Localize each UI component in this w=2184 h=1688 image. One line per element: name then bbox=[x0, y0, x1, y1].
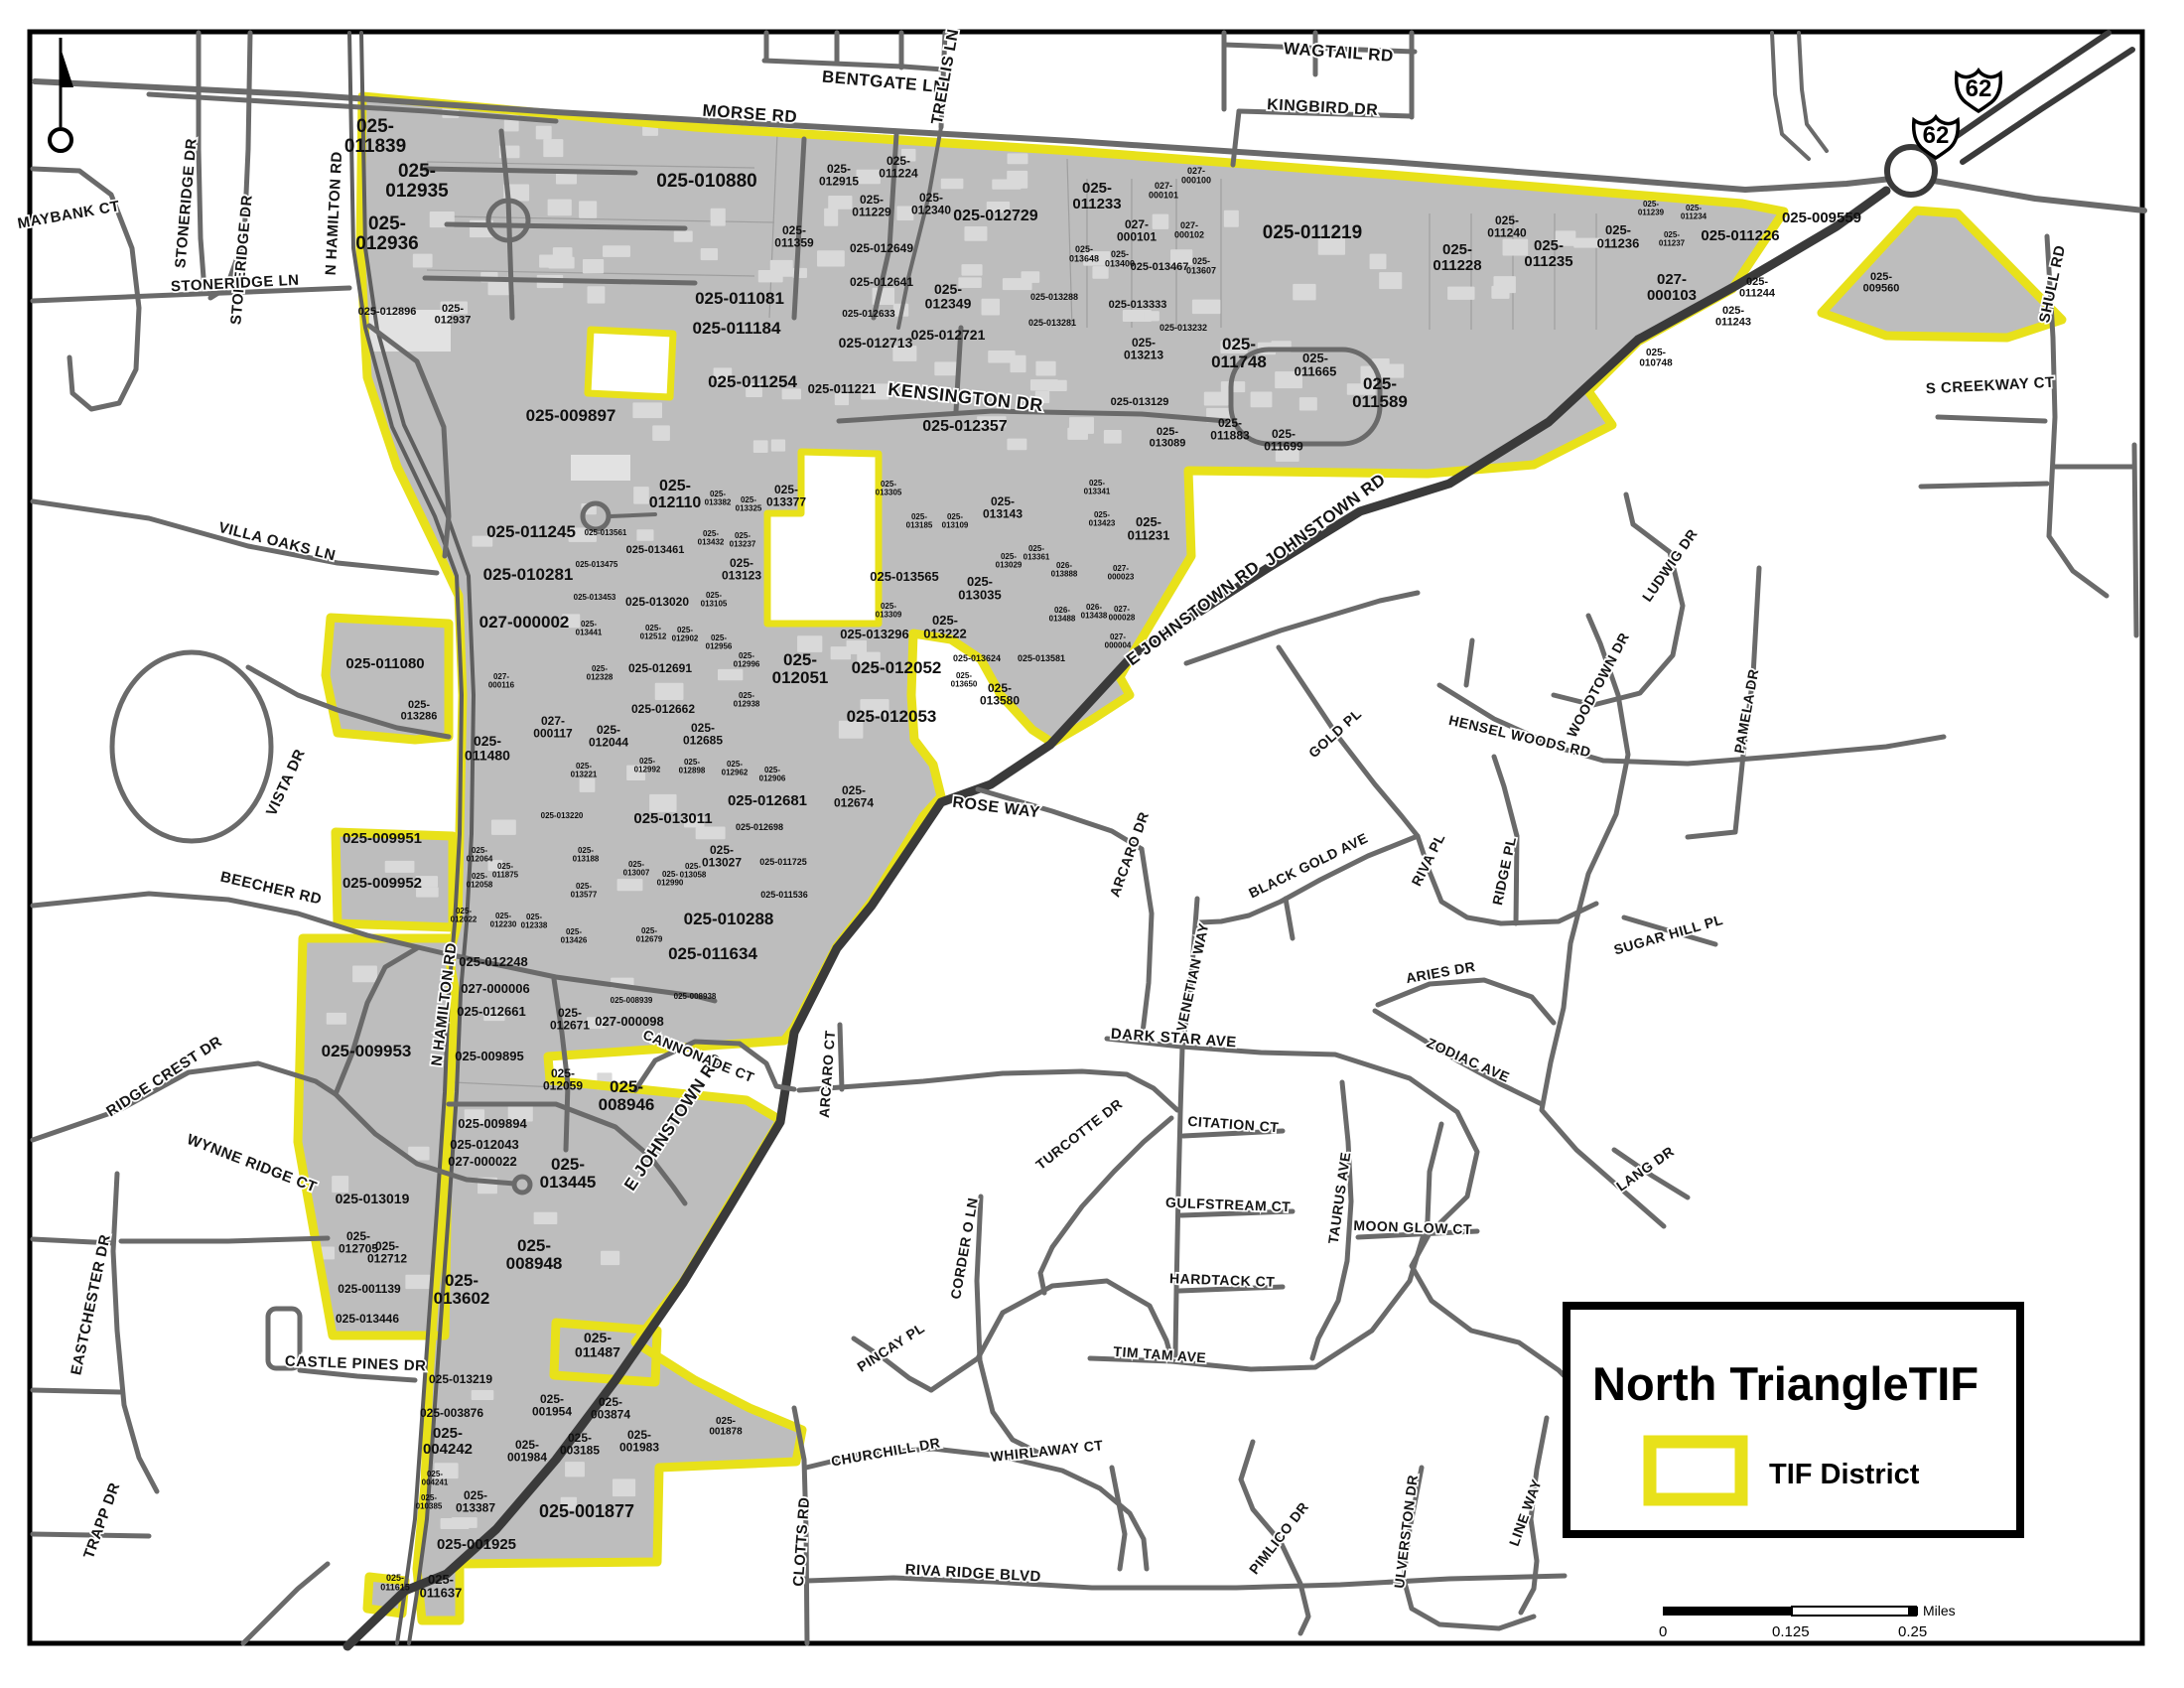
road bbox=[1921, 484, 2047, 487]
parcel-label: 025-009953 bbox=[322, 1042, 412, 1060]
road bbox=[611, 514, 655, 516]
parcel-label: 025-011536 bbox=[760, 890, 808, 900]
svg-text:62: 62 bbox=[1923, 122, 1950, 149]
parcel-label: 025-013232 bbox=[1160, 323, 1207, 333]
parcel-label: 025-013446 bbox=[336, 1312, 399, 1326]
parcel-label: 025-013561 bbox=[585, 528, 627, 537]
parcel-label: 025-013129 bbox=[1111, 396, 1169, 408]
parcel-label: 025-011080 bbox=[345, 655, 424, 672]
parcel-label: 025-012248 bbox=[459, 954, 527, 969]
parcel-label: 025-009895 bbox=[455, 1049, 523, 1063]
road bbox=[2134, 445, 2136, 635]
legend-label: TIF District bbox=[1769, 1459, 1920, 1490]
parcel-label: 025-013219 bbox=[429, 1372, 492, 1386]
parcel-label: 025-013475 bbox=[576, 560, 618, 569]
parcel-label: 025-010281 bbox=[483, 565, 574, 584]
parcel-label: 025-011725 bbox=[759, 857, 807, 867]
parcel-label: 025-008939 bbox=[611, 996, 653, 1005]
parcel-label: 025-012043 bbox=[450, 1137, 518, 1152]
parcel-label: 025-012641 bbox=[850, 275, 913, 289]
scale-unit: Miles bbox=[1923, 1603, 1956, 1618]
parcel-label: 025-012691 bbox=[628, 661, 692, 675]
parcel-label: 025-012681 bbox=[728, 792, 807, 809]
parcel-label: 025-013453 bbox=[574, 593, 616, 602]
parcel-label: 025-011634 bbox=[668, 944, 757, 963]
parcel-label: 025-009897 bbox=[526, 406, 616, 425]
parcel-label: 025-008938 bbox=[674, 992, 717, 1001]
parcel-label: 025-012729 bbox=[953, 208, 1038, 224]
parcel-label: 027-000006 bbox=[461, 981, 529, 996]
parcel-label: 025-013296 bbox=[840, 627, 908, 641]
parcel-label: 025-013581 bbox=[1018, 653, 1065, 663]
scale-end: 0.25 bbox=[1898, 1623, 1927, 1640]
scale-start: 0 bbox=[1659, 1623, 1667, 1640]
parcel-label: 025-013020 bbox=[625, 595, 689, 609]
parcel-label: 025-001877 bbox=[539, 1501, 634, 1521]
parcel-label: 025-012661 bbox=[457, 1004, 525, 1019]
parcel-label: 025-013220 bbox=[541, 811, 584, 820]
parcel-label: 025-013333 bbox=[1109, 299, 1167, 311]
parcel-label: 025-012721 bbox=[911, 327, 986, 343]
parcel-label: 027-000022 bbox=[448, 1154, 516, 1169]
parcel-label: 025-013624 bbox=[953, 653, 1001, 663]
parcel-label: 027-000098 bbox=[595, 1014, 663, 1029]
parcel-label: 025-009952 bbox=[342, 875, 422, 892]
parcel-label: 025-012896 bbox=[358, 306, 417, 318]
title-box-frame bbox=[1567, 1306, 2020, 1534]
parcel-label: 025-012052 bbox=[852, 658, 942, 677]
parcel-label: 025-013288 bbox=[1030, 292, 1078, 302]
parcel-label: 025-009894 bbox=[458, 1116, 527, 1131]
parcel-label: 025-013281 bbox=[1028, 318, 1076, 328]
parcel-label: 025-011245 bbox=[486, 522, 576, 541]
map-title: North TriangleTIF bbox=[1592, 1357, 1979, 1410]
map-page: 6262 MORSE RDBENTGATE LNTRELLIS LNWAGTAI… bbox=[0, 0, 2184, 1688]
parcel-label: 025-011081 bbox=[695, 289, 784, 308]
map-canvas[interactable]: 6262 MORSE RDBENTGATE LNTRELLIS LNWAGTAI… bbox=[0, 0, 2184, 1688]
parcel-label: 025-012649 bbox=[850, 241, 913, 255]
parcel-label: 025-013011 bbox=[633, 810, 712, 827]
parcel-label: 025-001925 bbox=[437, 1536, 516, 1553]
parcel-label: 025-012698 bbox=[736, 822, 783, 832]
parcel-label: 025-012633 bbox=[842, 309, 895, 320]
parcel-label: 025-012662 bbox=[631, 702, 695, 716]
parcel-label: 025-013565 bbox=[870, 569, 938, 584]
svg-text:62: 62 bbox=[1966, 75, 1992, 102]
parcel-label: 025-010288 bbox=[684, 910, 774, 928]
parcel-label: 025-013461 bbox=[626, 544, 685, 556]
title-box: North TriangleTIF TIF District bbox=[1567, 1306, 2020, 1534]
parcel-label: 025-011219 bbox=[1263, 222, 1362, 243]
parcel-label: 025-013467 bbox=[1131, 261, 1189, 273]
parcel-label: 025-012713 bbox=[839, 335, 913, 351]
parcel-label: 025-011226 bbox=[1701, 227, 1779, 244]
parcel-label: 025-011221 bbox=[808, 381, 877, 396]
parcel-label: 025-011184 bbox=[693, 319, 781, 338]
parcel-label: 025-009559 bbox=[1782, 210, 1861, 226]
road bbox=[840, 1025, 842, 1089]
parcel-label: 025-001139 bbox=[338, 1282, 401, 1296]
legend-swatch bbox=[1650, 1442, 1741, 1499]
district-hole bbox=[588, 330, 673, 397]
parcel-label: 027-000002 bbox=[479, 613, 570, 632]
parcel-label: 025-009951 bbox=[342, 830, 422, 847]
parcel-label: 025-011254 bbox=[708, 372, 797, 391]
parcel-label: 025-012053 bbox=[847, 707, 937, 726]
parcel-label: 025-003876 bbox=[420, 1406, 483, 1420]
parcel-label: 025-012357 bbox=[922, 418, 1008, 435]
road bbox=[33, 1390, 120, 1392]
parcel-label: 025-013019 bbox=[336, 1191, 410, 1206]
parcel-label: 025-010880 bbox=[656, 171, 756, 192]
scale-mid: 0.125 bbox=[1772, 1623, 1810, 1640]
